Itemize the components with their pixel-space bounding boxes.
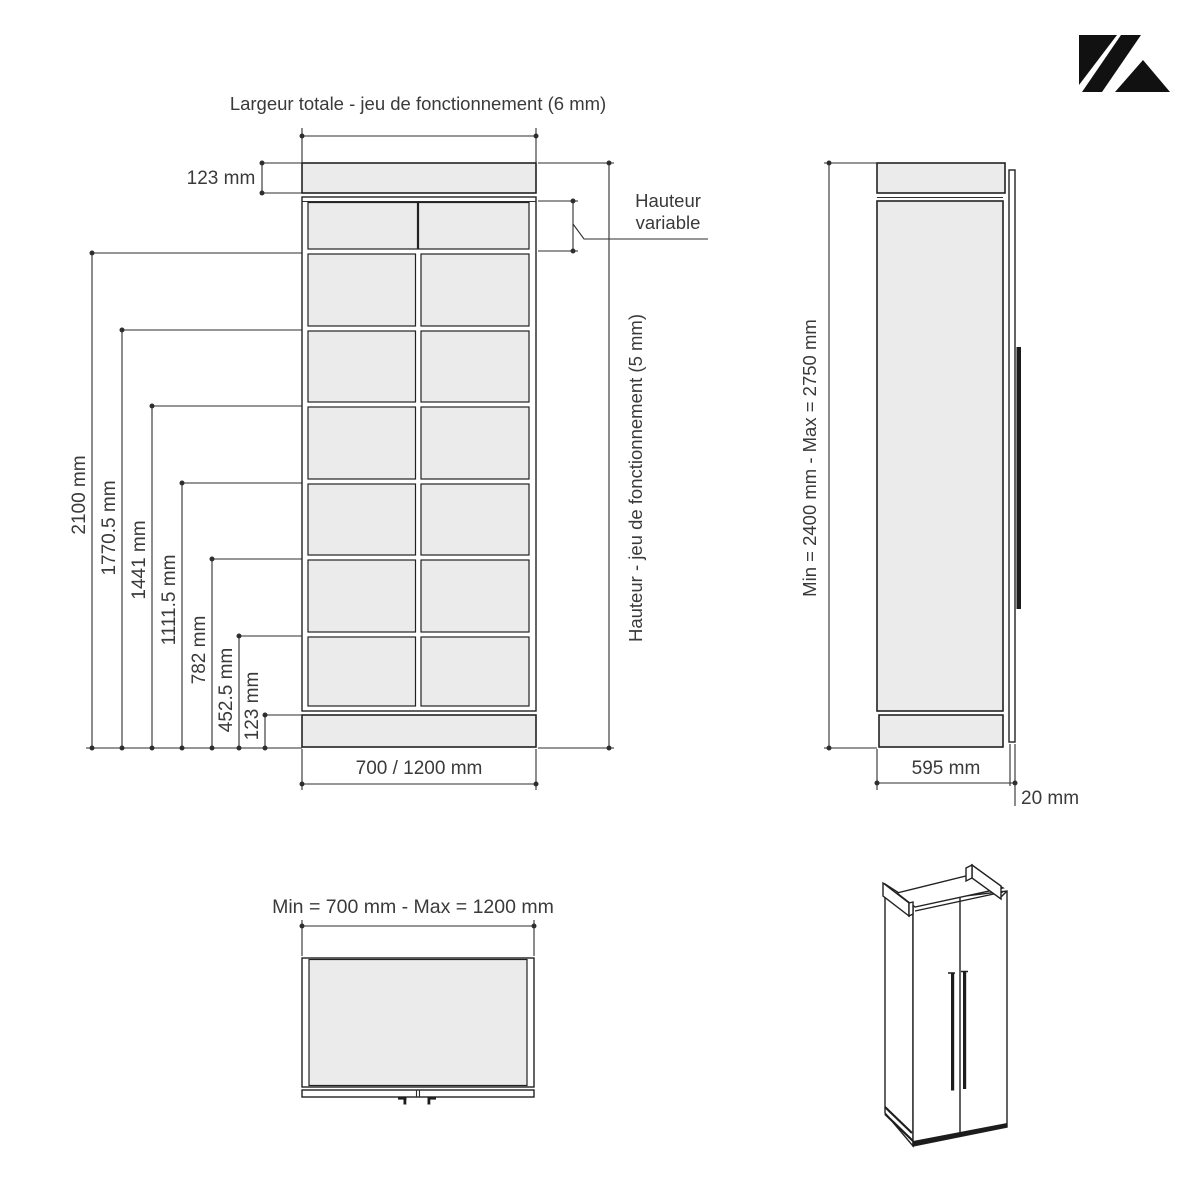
shelf-cell <box>308 331 416 402</box>
side-height-dimension: Min = 2400 mm - Max = 2750 mm <box>799 163 877 748</box>
shelf-cell <box>308 254 416 326</box>
front-top-cap <box>302 163 536 193</box>
variable-height-label-line2: variable <box>636 212 701 233</box>
front-cap-height-dimension: 123 mm <box>187 163 302 193</box>
dim-label-2100: 2100 mm <box>69 455 90 534</box>
side-view: Min = 2400 mm - Max = 2750 mm 595 mm 20 … <box>799 163 1079 809</box>
side-door-panel <box>1009 170 1015 742</box>
top-view: Min = 700 mm - Max = 1200 mm <box>272 896 554 1105</box>
door-thickness-label: 20 mm <box>1021 788 1079 809</box>
dim-label-452: 452.5 mm <box>216 648 237 732</box>
top-view-title: Min = 700 mm - Max = 1200 mm <box>272 896 554 918</box>
technical-drawing-sheet: Largeur totale - jeu de fonctionnement (… <box>0 0 1200 1200</box>
shelf-cell <box>421 484 529 555</box>
top-body-interior <box>309 960 527 1086</box>
top-width-dimension <box>302 920 534 956</box>
shelf-cell <box>419 203 530 250</box>
drawing-canvas: Largeur totale - jeu de fonctionnement (… <box>0 0 1200 1200</box>
cap-left-rim-end <box>909 902 913 916</box>
variable-height-callout: Hauteur variable <box>538 190 708 251</box>
dim-label-1441: 1441 mm <box>129 520 150 599</box>
top-door-strip <box>302 1090 534 1097</box>
top-door-handles <box>398 1099 436 1105</box>
shelf-cell <box>308 203 418 250</box>
dim-label-123: 123 mm <box>242 672 263 741</box>
front-view-title: Largeur totale - jeu de fonctionnement (… <box>230 93 606 114</box>
side-body <box>877 201 1003 711</box>
side-top-cap <box>877 163 1005 193</box>
front-plinth <box>302 715 536 747</box>
side-depth-dimension: 595 mm 20 mm <box>877 744 1079 809</box>
dim-label-1111: 1111.5 mm <box>159 555 180 646</box>
perspective-view <box>883 865 1007 1146</box>
dim-label-1770: 1770.5 mm <box>99 480 120 575</box>
side-door-handle <box>1017 347 1022 609</box>
front-height-dimensions: 2100 mm 1770.5 mm 1441 mm 1111.5 mm 782 … <box>69 253 302 748</box>
cap-back-rim-end <box>966 865 972 881</box>
height-clearance-label: Hauteur - jeu de fonctionnement (5 mm) <box>625 314 646 642</box>
side-plinth <box>879 715 1003 747</box>
shelf-cell <box>421 331 529 402</box>
front-view: Largeur totale - jeu de fonctionnement (… <box>69 93 708 790</box>
side-depth-label: 595 mm <box>912 758 981 779</box>
shelf-cell <box>421 560 529 632</box>
shelf-cell <box>308 560 416 632</box>
cap-height-label: 123 mm <box>187 168 256 189</box>
wardrobe-side-panel <box>885 884 913 1146</box>
brand-logo <box>1079 35 1170 92</box>
front-width-dimension-bottom: 700 / 1200 mm <box>302 749 536 790</box>
variable-height-label-line1: Hauteur <box>635 190 701 211</box>
dim-label-782: 782 mm <box>189 616 210 685</box>
logo-right-shape <box>1115 60 1170 92</box>
front-width-label: 700 / 1200 mm <box>356 758 483 779</box>
shelf-cell <box>421 254 529 326</box>
front-shelf-row-variable <box>308 203 529 250</box>
front-width-dimension-top <box>302 128 536 163</box>
side-height-range-label: Min = 2400 mm - Max = 2750 mm <box>799 319 820 597</box>
shelf-cell <box>421 407 529 479</box>
shelf-cell <box>308 484 416 555</box>
shelf-cell <box>421 637 529 706</box>
shelf-cell <box>308 407 416 479</box>
shelf-cell <box>308 637 416 706</box>
